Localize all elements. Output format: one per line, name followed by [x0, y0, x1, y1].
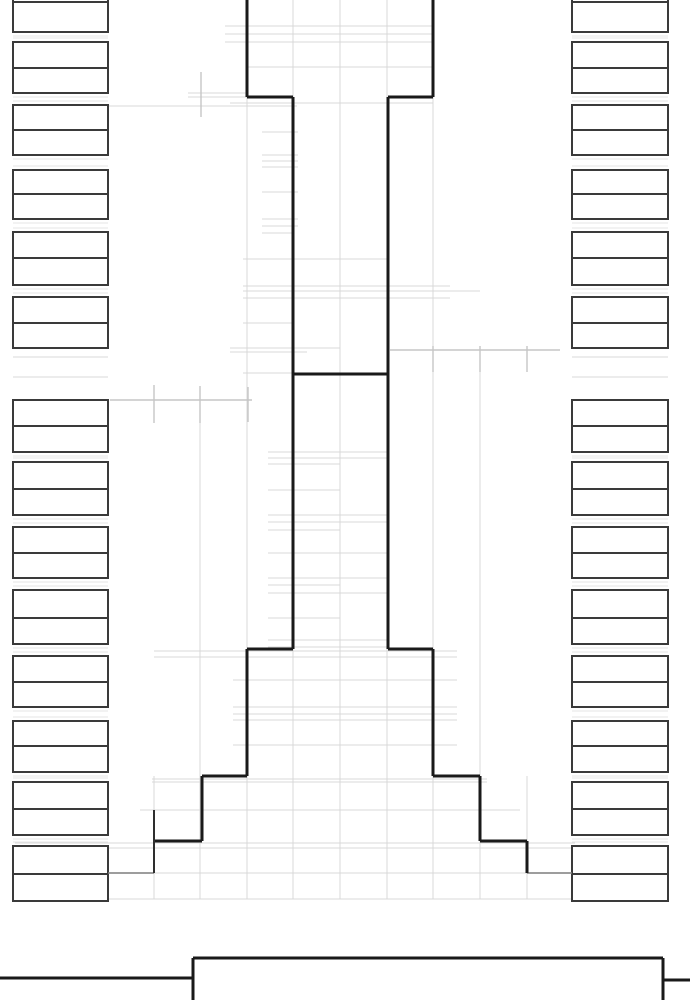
label-box: [13, 0, 108, 32]
elevation-drawing: [0, 0, 690, 1000]
dimension-layer: [110, 72, 560, 423]
label-column-left: [13, 0, 108, 901]
grid-layer: [13, 0, 668, 899]
base-structure: [0, 958, 690, 1000]
drawing-sheet: [0, 0, 690, 1000]
label-box: [572, 0, 668, 32]
label-column-right: [572, 0, 668, 901]
